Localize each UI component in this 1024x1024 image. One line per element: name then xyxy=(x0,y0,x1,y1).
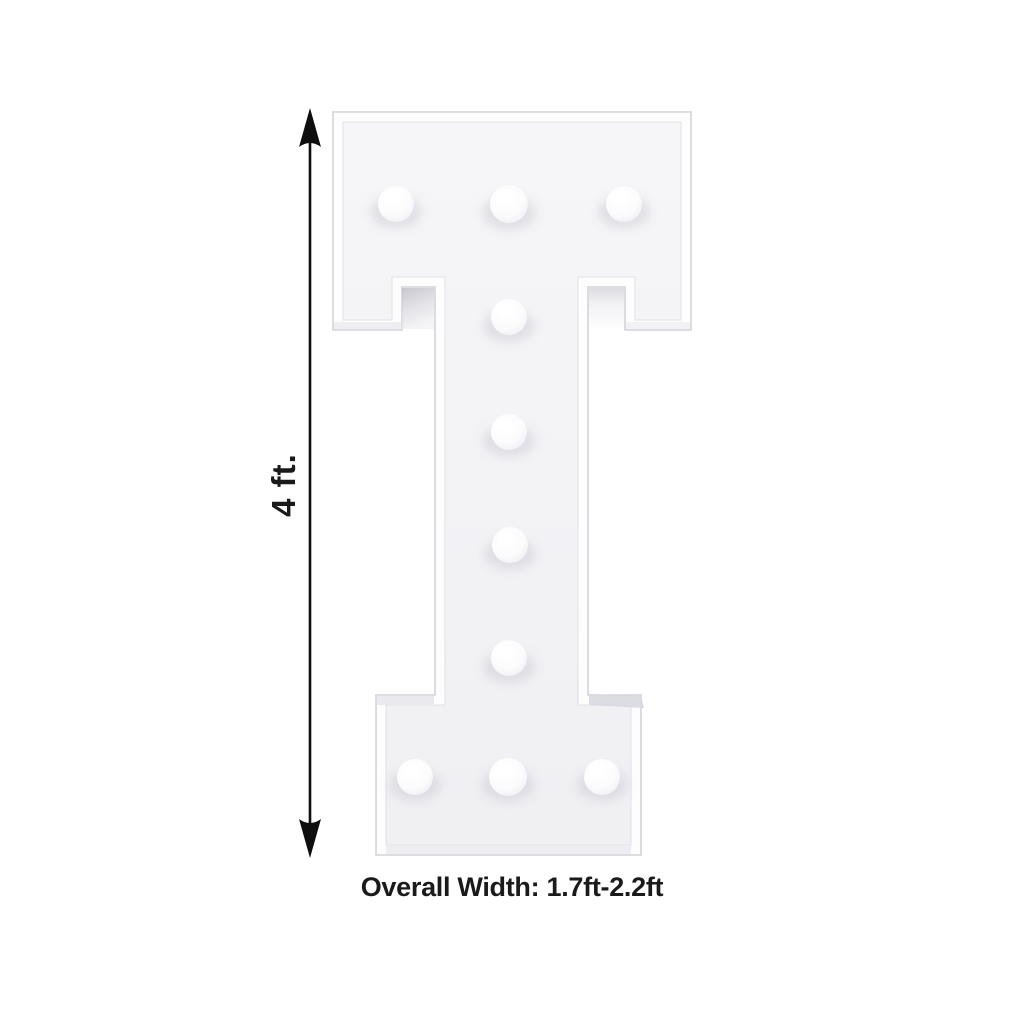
left-notch-shading xyxy=(402,288,434,329)
product-dimension-diagram: 4 ft. Overall Width: 1.7ft-2.2ft xyxy=(0,0,1024,1024)
marquee-letter-illustration xyxy=(0,0,1024,1024)
right-foot-bottom-face xyxy=(626,322,690,329)
left-ledge-face xyxy=(377,696,434,705)
arrowhead-down xyxy=(299,819,321,858)
letter-inner-panel xyxy=(343,122,681,845)
right-notch-shading xyxy=(589,288,624,329)
arrowhead-up xyxy=(299,108,321,147)
width-dimension-label: Overall Width: 1.7ft-2.2ft xyxy=(0,872,1024,903)
height-dimension-label: 4 ft. xyxy=(264,423,304,547)
left-foot-bottom-face xyxy=(334,322,401,329)
bottom-bar-bottom-face xyxy=(386,844,631,854)
